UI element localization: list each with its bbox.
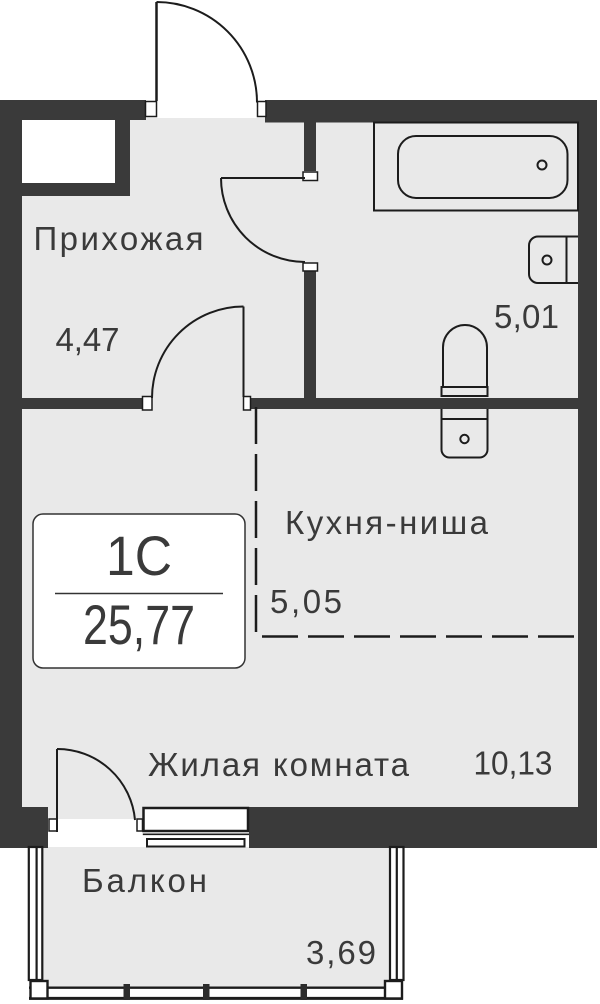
svg-text:Жилая комната: Жилая комната [148, 746, 410, 783]
svg-text:25,77: 25,77 [83, 593, 195, 656]
svg-text:5,01: 5,01 [494, 298, 559, 335]
svg-text:Кухня-ниша: Кухня-ниша [285, 504, 489, 541]
svg-text:1С: 1С [106, 524, 172, 587]
svg-text:Балкон: Балкон [82, 862, 207, 899]
svg-text:4,47: 4,47 [56, 321, 120, 358]
svg-text:3,69: 3,69 [306, 934, 376, 971]
svg-text:5,05: 5,05 [270, 583, 342, 620]
svg-text:10,13: 10,13 [474, 745, 553, 782]
